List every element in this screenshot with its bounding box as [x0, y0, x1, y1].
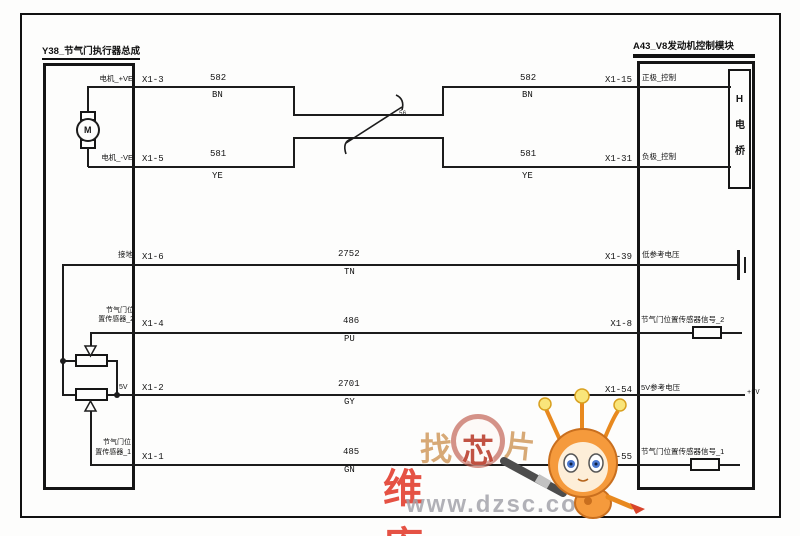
mascot-antenna-ball: [614, 399, 626, 411]
mascot-antenna: [546, 409, 560, 440]
mascot-pupil: [570, 463, 573, 466]
mascot-antenna-ball: [539, 398, 551, 410]
mascot-antenna-ball: [575, 389, 589, 403]
wiring-diagram-page: Y38_节气门执行器总成 A43_V8发动机控制模块 H电桥 电机_+VE X1…: [0, 0, 800, 536]
mascot-illustration: [0, 0, 800, 536]
magnifier-handle-band: [537, 478, 549, 485]
mascot-antenna: [604, 411, 618, 440]
mascot-belt-dot: [584, 497, 592, 505]
mascot-pupil: [595, 463, 598, 466]
